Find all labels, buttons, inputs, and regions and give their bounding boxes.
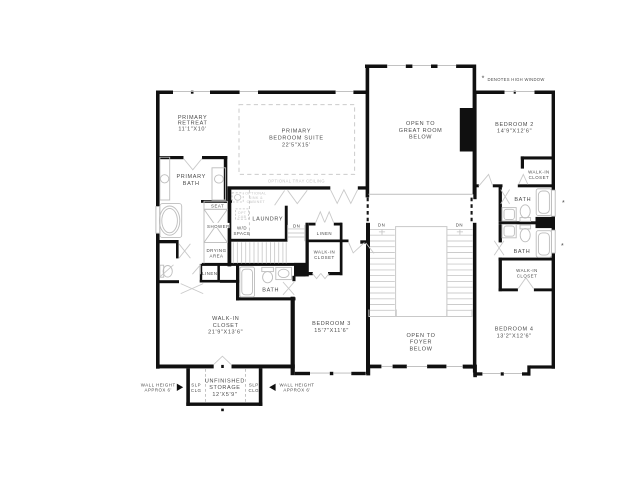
svg-text:WALK-IN: WALK-IN: [528, 169, 550, 174]
svg-text:DN: DN: [456, 223, 463, 228]
svg-text:CAB: CAB: [238, 215, 247, 219]
svg-text:DENOTES HIGH WINDOW: DENOTES HIGH WINDOW: [488, 77, 545, 82]
svg-text:STORAGE: STORAGE: [209, 385, 240, 391]
svg-text:*: *: [561, 243, 564, 250]
svg-text:AREA: AREA: [210, 254, 224, 259]
svg-text:W/D: W/D: [237, 226, 247, 231]
svg-text:CLOSET: CLOSET: [517, 273, 538, 278]
svg-text:22'5"X15': 22'5"X15': [282, 143, 311, 149]
svg-text:PRIMARY: PRIMARY: [282, 128, 312, 134]
svg-text:15'7"X11'6": 15'7"X11'6": [314, 328, 349, 334]
svg-text:UNFINISHED: UNFINISHED: [205, 378, 245, 384]
svg-text:CLOSET: CLOSET: [314, 255, 335, 260]
svg-text:BATH: BATH: [183, 181, 200, 187]
svg-text:SPACE: SPACE: [233, 231, 250, 236]
svg-text:CLG: CLG: [191, 388, 202, 393]
svg-text:LINEN: LINEN: [317, 231, 332, 236]
svg-text:CLG: CLG: [249, 388, 260, 393]
svg-text:DRYING: DRYING: [207, 248, 227, 253]
svg-text:BEDROOM 2: BEDROOM 2: [495, 122, 534, 128]
svg-text:21'9"X13'6": 21'9"X13'6": [208, 330, 243, 336]
svg-text:14'9"X12'6": 14'9"X12'6": [497, 129, 532, 135]
svg-text:11'1"X10': 11'1"X10': [178, 126, 206, 132]
svg-text:BEDROOM 4: BEDROOM 4: [495, 327, 534, 333]
svg-text:GREAT ROOM: GREAT ROOM: [399, 128, 443, 134]
svg-text:SEAT: SEAT: [211, 204, 224, 209]
svg-text:WALL HEIGHT: WALL HEIGHT: [141, 382, 176, 387]
svg-text:BELOW: BELOW: [409, 347, 432, 353]
svg-text:CLOSET: CLOSET: [213, 323, 239, 329]
svg-text:OPEN TO: OPEN TO: [406, 121, 435, 127]
svg-text:OPEN TO: OPEN TO: [406, 333, 435, 339]
svg-text:12'X5'9": 12'X5'9": [212, 392, 237, 398]
svg-text:WALK-IN: WALK-IN: [212, 316, 239, 322]
svg-text:LINEN: LINEN: [202, 271, 217, 276]
svg-text:WALK-IN: WALK-IN: [314, 250, 336, 255]
svg-text:WALL HEIGHT: WALL HEIGHT: [280, 382, 315, 387]
svg-text:CLOSET: CLOSET: [529, 175, 550, 180]
svg-text:APPROX 6': APPROX 6': [283, 388, 310, 393]
svg-text:BEDROOM 3: BEDROOM 3: [312, 321, 351, 327]
svg-text:13'2"X12'6": 13'2"X12'6": [497, 334, 532, 340]
svg-text:SHOWER: SHOWER: [207, 224, 230, 229]
svg-text:SLP: SLP: [191, 382, 201, 387]
svg-text:*: *: [482, 75, 485, 82]
svg-text:BATH: BATH: [262, 287, 279, 293]
svg-text:DN: DN: [293, 223, 300, 228]
svg-text:APPROX 6': APPROX 6': [145, 388, 172, 393]
svg-text:CABINET: CABINET: [247, 200, 266, 204]
svg-text:PRIMARY: PRIMARY: [176, 174, 206, 180]
svg-text:BELOW: BELOW: [409, 135, 432, 141]
svg-text:DN: DN: [378, 223, 385, 228]
svg-text:*: *: [562, 200, 565, 207]
svg-text:FOYER: FOYER: [410, 340, 432, 346]
svg-text:BATH: BATH: [514, 197, 531, 203]
svg-text:BEDROOM SUITE: BEDROOM SUITE: [269, 136, 324, 142]
svg-text:WALK-IN: WALK-IN: [516, 268, 538, 273]
svg-text:SLP: SLP: [249, 382, 259, 387]
svg-text:LAUNDRY: LAUNDRY: [252, 217, 283, 223]
svg-text:BATH: BATH: [514, 249, 531, 255]
svg-text:OPTIONAL TRAY CEILING: OPTIONAL TRAY CEILING: [268, 179, 325, 184]
